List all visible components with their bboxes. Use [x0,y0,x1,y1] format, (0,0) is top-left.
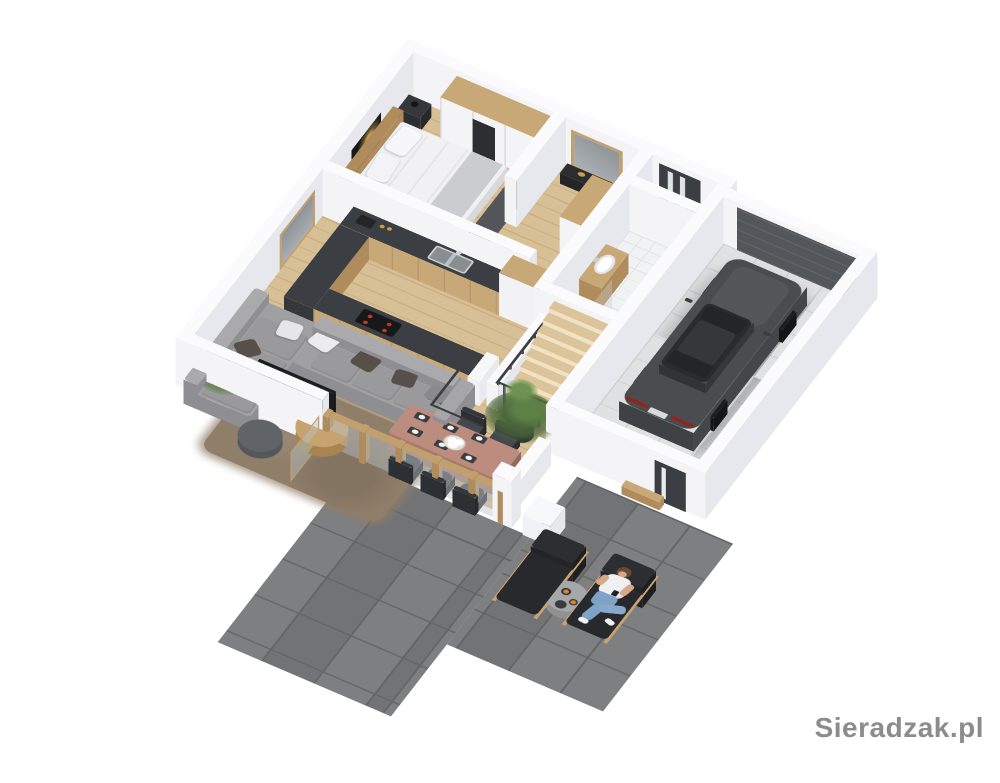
watermark: Sieradzak.pl [815,712,984,744]
glass-wall-pillar-side [512,470,521,529]
chair-backrest-side [475,495,478,516]
chair-backrest-side [443,480,446,501]
floor-plan-canvas: Sieradzak.pl [0,0,1000,750]
garage-back-wall-side [705,465,712,520]
bedroom-hall-divider-front [505,175,517,227]
sofa-back-west-front [184,380,198,410]
